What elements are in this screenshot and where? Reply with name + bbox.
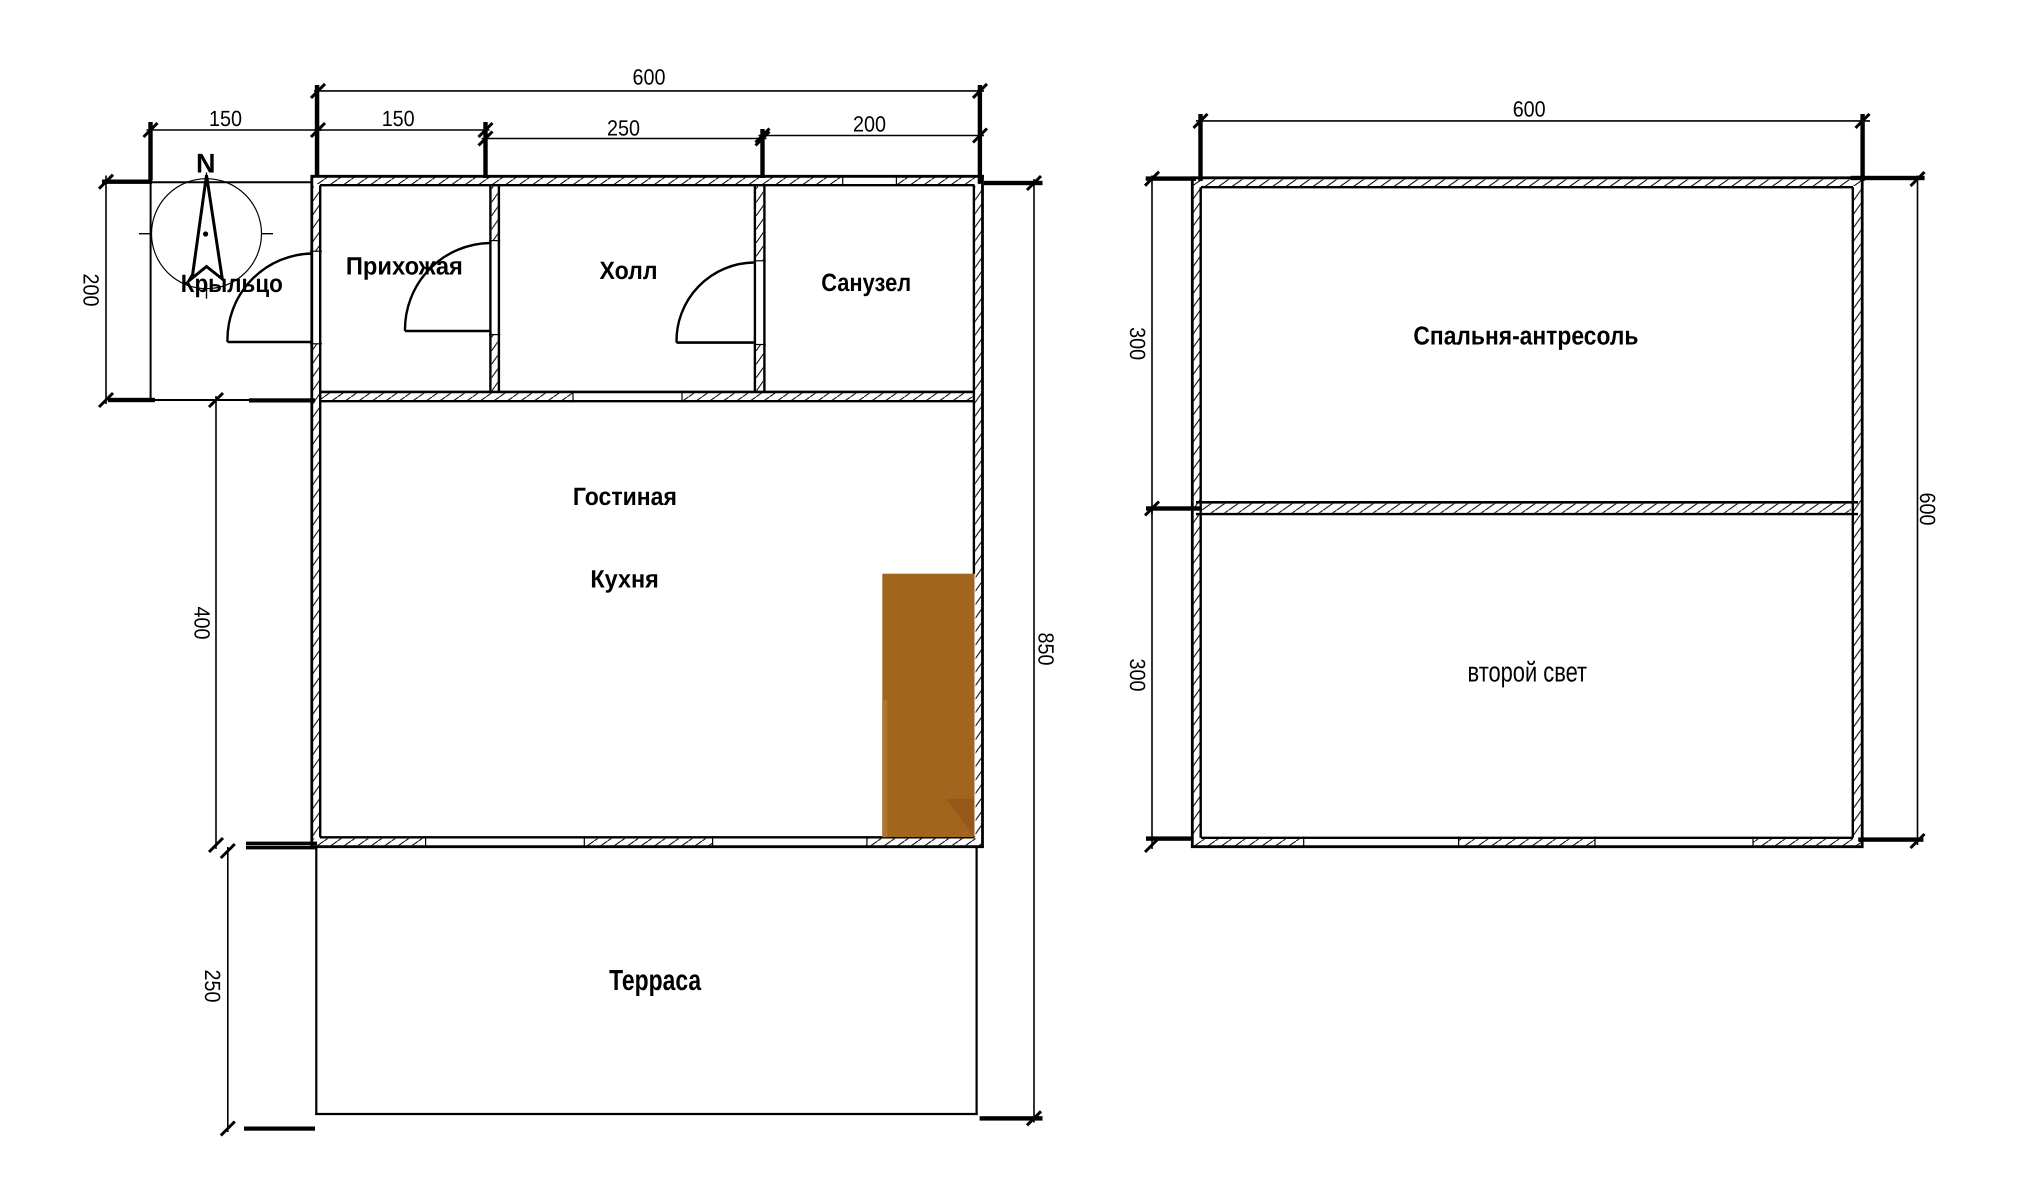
svg-text:Прихожая: Прихожая — [346, 252, 463, 280]
svg-text:250: 250 — [200, 970, 225, 1003]
svg-text:N: N — [196, 149, 216, 179]
svg-text:250: 250 — [607, 115, 640, 140]
svg-text:Гостиная: Гостиная — [573, 483, 677, 511]
svg-text:150: 150 — [209, 106, 242, 131]
svg-text:Санузел: Санузел — [821, 269, 911, 297]
svg-text:Спальня-антресоль: Спальня-антресоль — [1413, 320, 1638, 350]
svg-text:300: 300 — [1125, 659, 1150, 692]
svg-text:Кухня: Кухня — [590, 565, 659, 593]
svg-text:Холл: Холл — [600, 257, 658, 285]
svg-text:150: 150 — [382, 106, 415, 131]
svg-text:второй свет: второй свет — [1468, 657, 1588, 688]
svg-text:300: 300 — [1125, 327, 1150, 360]
svg-text:850: 850 — [1034, 633, 1059, 666]
svg-text:400: 400 — [190, 607, 215, 640]
svg-text:Терраса: Терраса — [609, 965, 702, 997]
svg-text:Крыльцо: Крыльцо — [181, 270, 283, 298]
svg-text:600: 600 — [633, 65, 666, 90]
svg-text:200: 200 — [79, 274, 104, 307]
svg-text:600: 600 — [1513, 97, 1546, 122]
svg-text:600: 600 — [1915, 493, 1940, 526]
svg-text:200: 200 — [853, 112, 886, 137]
